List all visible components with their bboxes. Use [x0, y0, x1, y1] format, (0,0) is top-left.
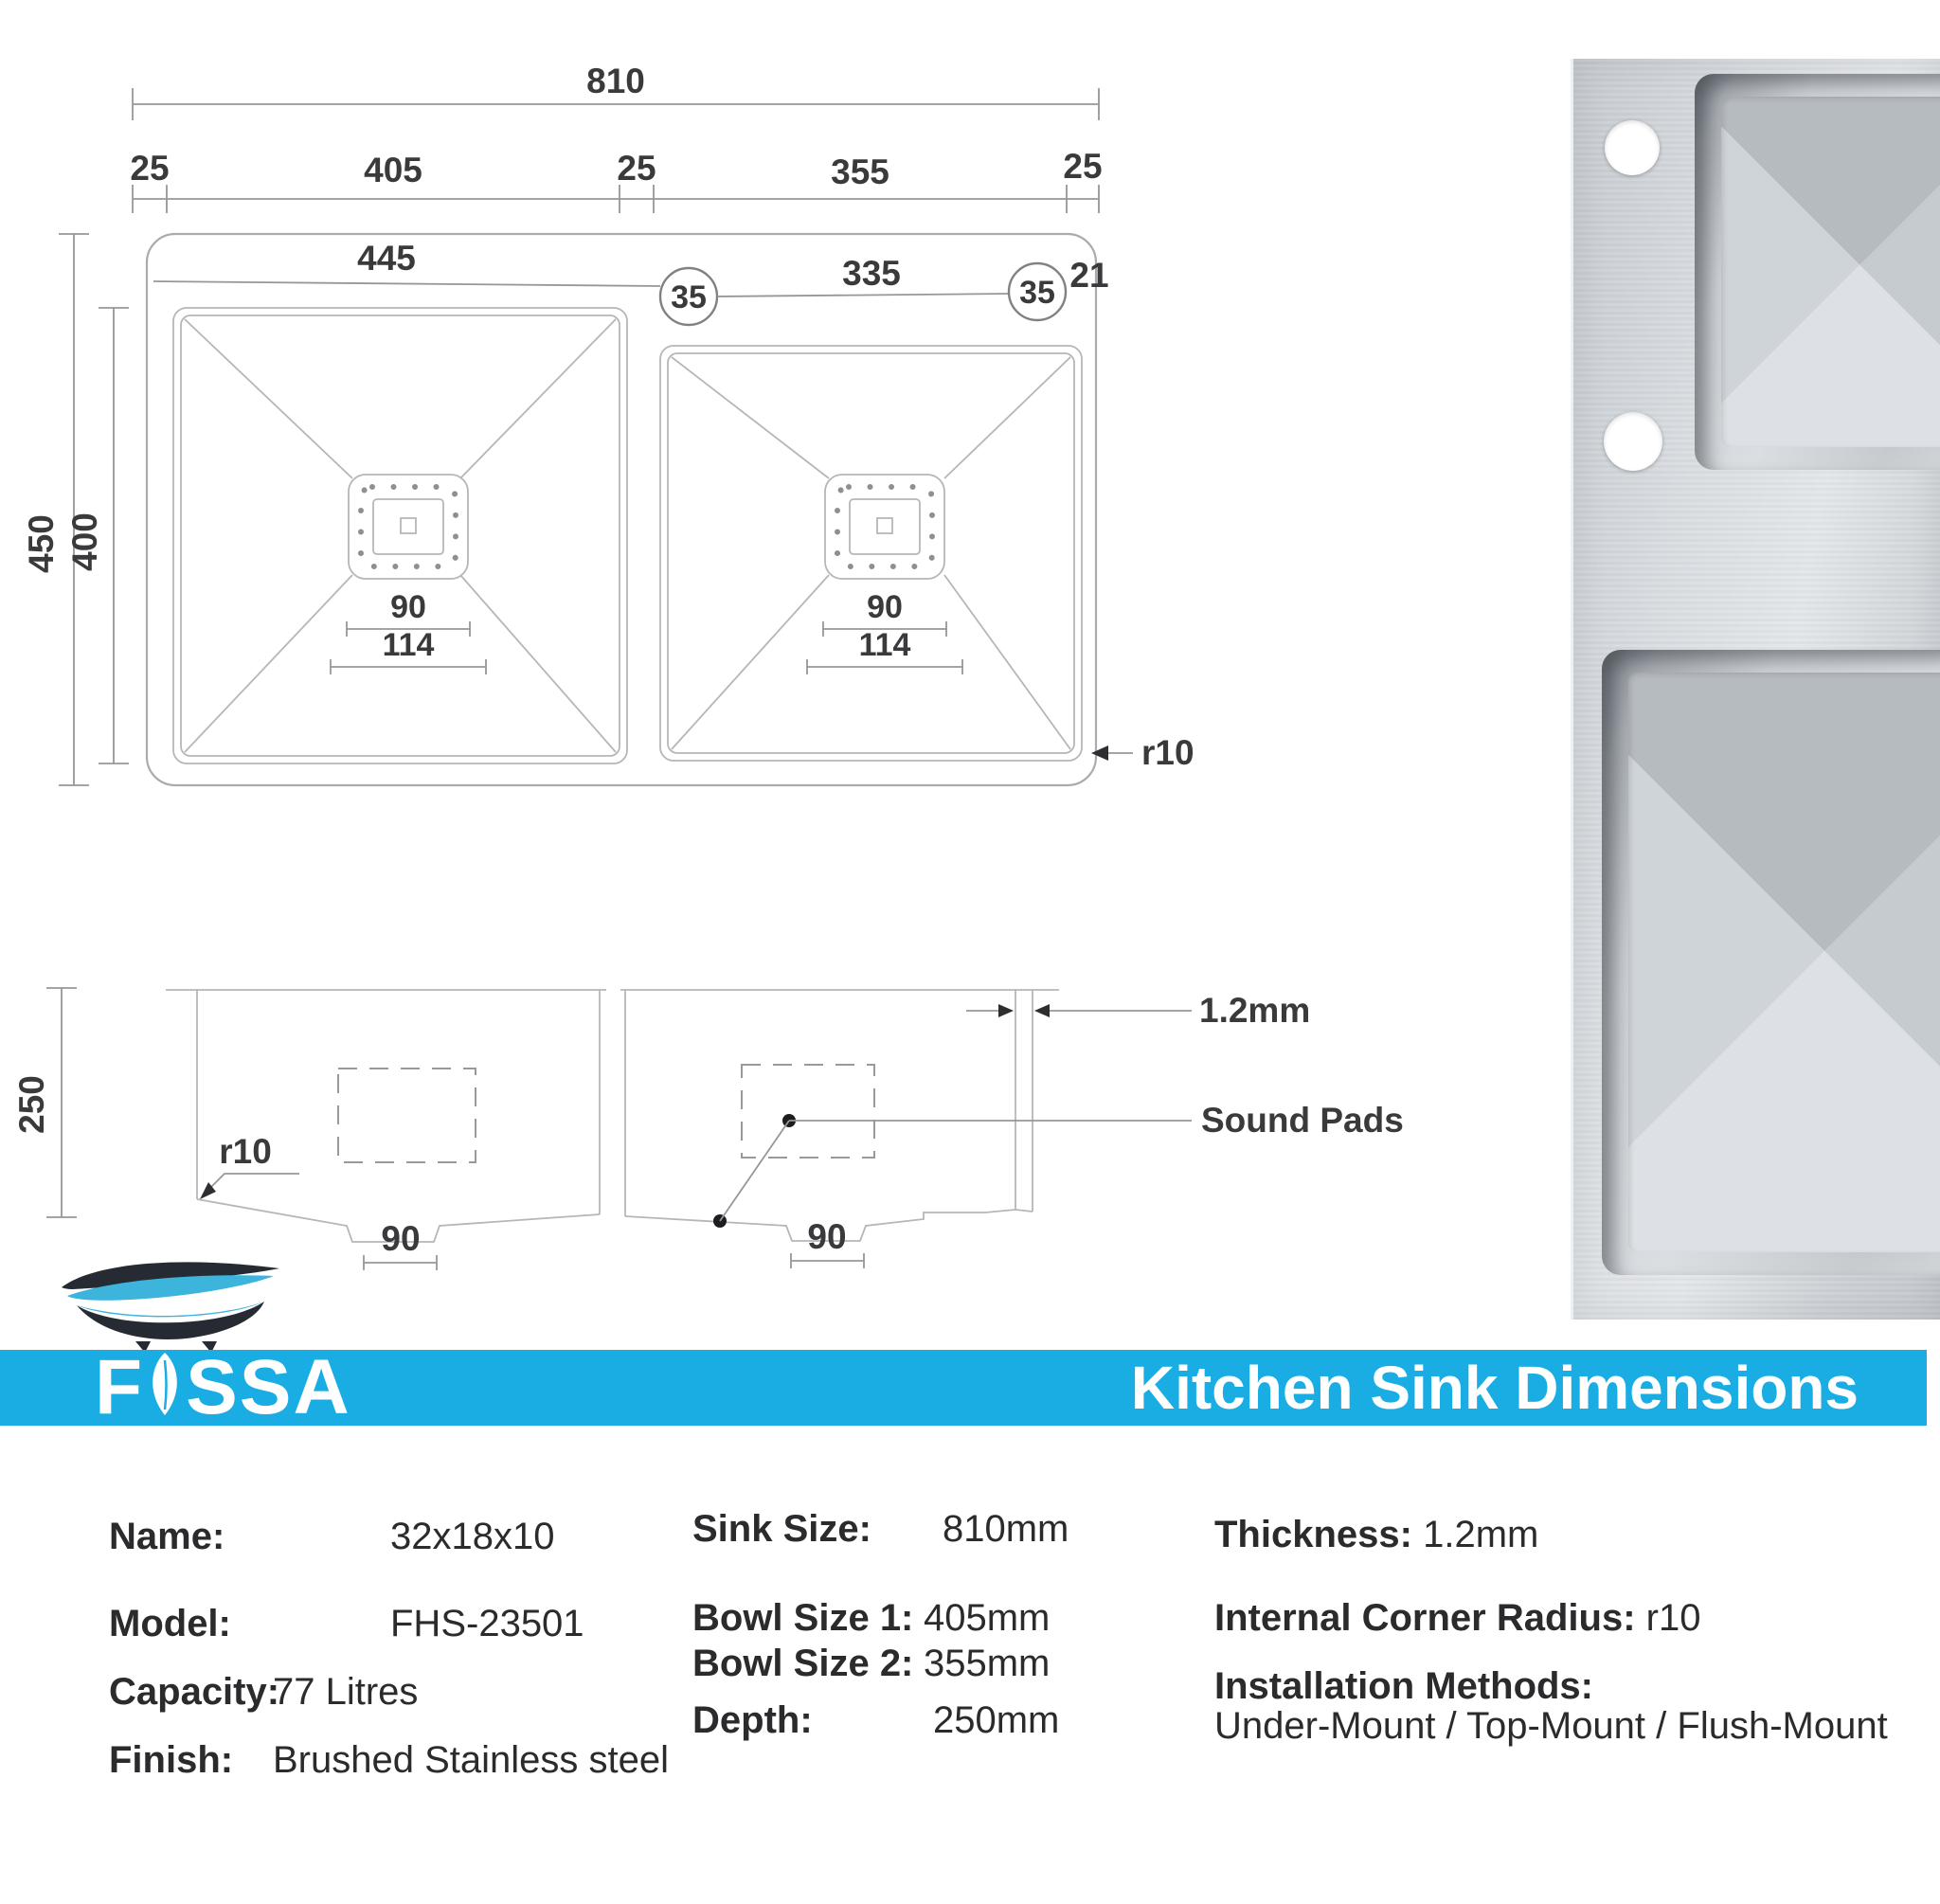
dim-335: 335 — [842, 254, 901, 293]
dim-355: 355 — [831, 153, 889, 191]
sound-pads-callout: Sound Pads — [713, 1101, 1404, 1228]
dim-inner-widths: 445 35 335 35 21 — [153, 239, 1109, 325]
dim-r10-side: r10 — [219, 1132, 272, 1171]
product-photo — [1571, 59, 1940, 1320]
photo-bowl-2 — [1602, 650, 1940, 1275]
thickness-callout: 1.2mm — [966, 991, 1310, 1030]
bowl2-drain — [825, 475, 944, 579]
dim-b2-114: 114 — [859, 627, 911, 663]
dim-side-90-right: 90 — [807, 1217, 846, 1256]
dim-r10-top: r10 — [1141, 733, 1195, 772]
brand-letter-f: F — [95, 1343, 144, 1432]
dim-25-mid: 25 — [617, 149, 656, 188]
spec-name-label: Name: — [109, 1516, 225, 1558]
spec-install-label-text: Installation Methods: — [1214, 1665, 1593, 1707]
spec-radius-row: Internal Corner Radius: r10 — [1214, 1597, 1700, 1640]
spec-thickness-value: 1.2mm — [1423, 1514, 1538, 1555]
spec-name-value: 32x18x10 — [390, 1516, 554, 1558]
radius-badge-2: 35 — [1019, 275, 1055, 311]
dim-21: 21 — [1069, 256, 1108, 295]
spec-bowl2-label-text: Bowl Size 2: — [692, 1643, 913, 1684]
dim-445: 445 — [357, 239, 416, 278]
title-banner: F SSA Kitchen Sink Dimensions — [0, 1350, 1927, 1426]
leaf-icon — [147, 1353, 183, 1415]
dim-b2-90: 90 — [867, 589, 903, 625]
spec-bowl2-value: 355mm — [924, 1643, 1050, 1685]
spec-radius-label-text: Internal Corner Radius: — [1214, 1597, 1636, 1639]
spec-thickness-label-text: Thickness: — [1214, 1514, 1412, 1555]
sound-pads-label: Sound Pads — [1201, 1101, 1404, 1140]
spec-thickness-row: Thickness: 1.2mm — [1214, 1514, 1538, 1556]
dim-drains-side: 90 90 — [364, 1217, 864, 1270]
brand-wordmark: F SSA — [95, 1350, 351, 1426]
dim-total-width: 810 — [133, 62, 1099, 120]
dim-thickness: 1.2mm — [1199, 991, 1310, 1030]
spec-capacity-label-text: Capacity: — [109, 1671, 279, 1713]
dim-b1-90: 90 — [390, 589, 426, 625]
spec-sinksize-label: Sink Size: — [692, 1508, 871, 1551]
dim-250: 250 — [12, 1075, 51, 1134]
bathtub-icon — [52, 1256, 289, 1353]
dim-400: 400 — [65, 512, 104, 571]
dim-810: 810 — [586, 62, 645, 100]
spec-depth-value: 250mm — [933, 1699, 1059, 1742]
spec-capacity-label: Capacity: — [109, 1671, 279, 1714]
dim-450: 450 — [22, 514, 61, 573]
spec-depth-label: Depth: — [692, 1699, 813, 1742]
spec-install-header: Installation Methods: — [1214, 1665, 1593, 1708]
spec-depth-label-text: Depth: — [692, 1699, 813, 1741]
spec-model-value: FHS-23501 — [390, 1603, 584, 1645]
dim-b1-114: 114 — [383, 627, 435, 663]
photo-bowl-2-floor — [1628, 673, 1940, 1252]
spec-install-value: Under-Mount / Top-Mount / Flush-Mount — [1214, 1705, 1888, 1748]
dim-side-90-left: 90 — [381, 1219, 420, 1258]
spec-bowl1-value: 405mm — [924, 1597, 1050, 1640]
spec-radius-value: r10 — [1646, 1597, 1701, 1639]
spec-finish-label-text: Finish: — [109, 1739, 233, 1781]
dim-drains-top: 90 114 90 114 — [331, 589, 962, 674]
brand-letters-ssa: SSA — [186, 1343, 351, 1432]
bowl1-drain — [349, 475, 468, 579]
spec-bowl1-label: Bowl Size 1: — [692, 1597, 913, 1640]
spec-model-label: Model: — [109, 1603, 231, 1645]
spec-finish-value: Brushed Stainless steel — [273, 1739, 669, 1782]
spec-capacity-value: 77 Litres — [273, 1671, 418, 1714]
dim-chain: 25 405 25 355 25 — [130, 147, 1102, 213]
top-view-outline — [147, 234, 1096, 785]
spec-bowl1-label-text: Bowl Size 1: — [692, 1597, 913, 1639]
spec-name-label-text: Name: — [109, 1516, 225, 1557]
side-view-outline: 250 — [12, 988, 1059, 1242]
dim-25-left: 25 — [130, 149, 169, 188]
spec-model-label-text: Model: — [109, 1603, 231, 1644]
radius-badge-1: 35 — [671, 279, 707, 315]
dim-heights: 450 400 — [22, 234, 129, 785]
faucet-hole-1 — [1605, 120, 1660, 175]
spec-sinksize-label-text: Sink Size: — [692, 1508, 871, 1550]
corner-radius-callout-top: r10 — [1091, 733, 1195, 772]
dim-405: 405 — [364, 151, 422, 189]
dim-25-right: 25 — [1063, 147, 1102, 186]
faucet-hole-2 — [1604, 412, 1662, 471]
photo-bowl-1-floor — [1721, 97, 1940, 447]
spec-sheet: 810 25 405 25 355 25 — [0, 0, 1940, 1904]
spec-bowl2-label: Bowl Size 2: — [692, 1643, 913, 1685]
photo-bowl-1 — [1695, 74, 1940, 470]
spec-sinksize-value: 810mm — [943, 1508, 1069, 1551]
corner-radius-callout-side: r10 — [200, 1132, 299, 1199]
sheet-title: Kitchen Sink Dimensions — [1131, 1350, 1859, 1426]
spec-finish-label: Finish: — [109, 1739, 233, 1782]
